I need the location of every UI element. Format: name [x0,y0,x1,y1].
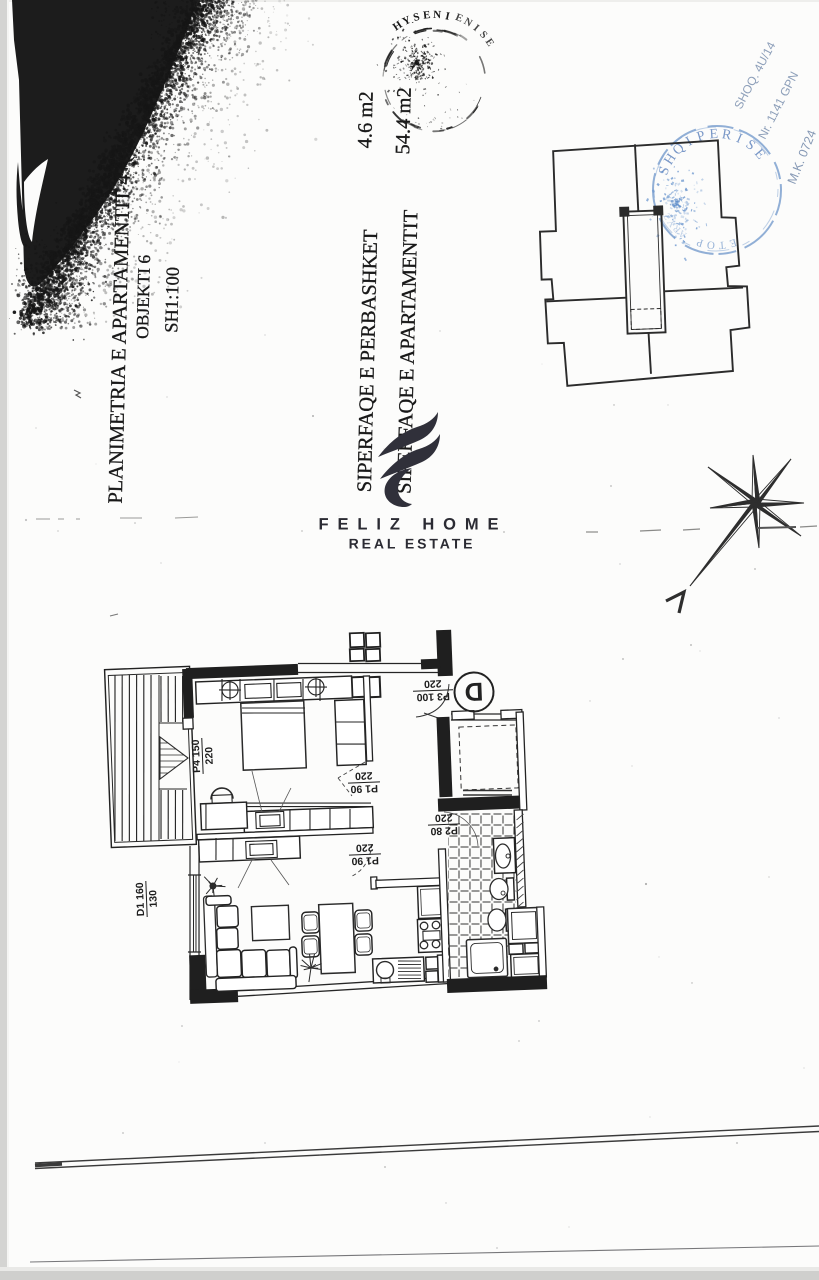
svg-text:N: N [433,9,442,21]
svg-text:T: T [718,239,726,252]
svg-text:SH1:100: SH1:100 [162,267,184,333]
svg-text:OBJEKTI 6: OBJEKTI 6 [132,254,154,339]
svg-text:4.6 m2: 4.6 m2 [354,91,377,148]
svg-text:FELIZ HOME: FELIZ HOME [319,516,508,534]
svg-text:E: E [422,9,431,22]
svg-text:O: O [706,238,715,251]
